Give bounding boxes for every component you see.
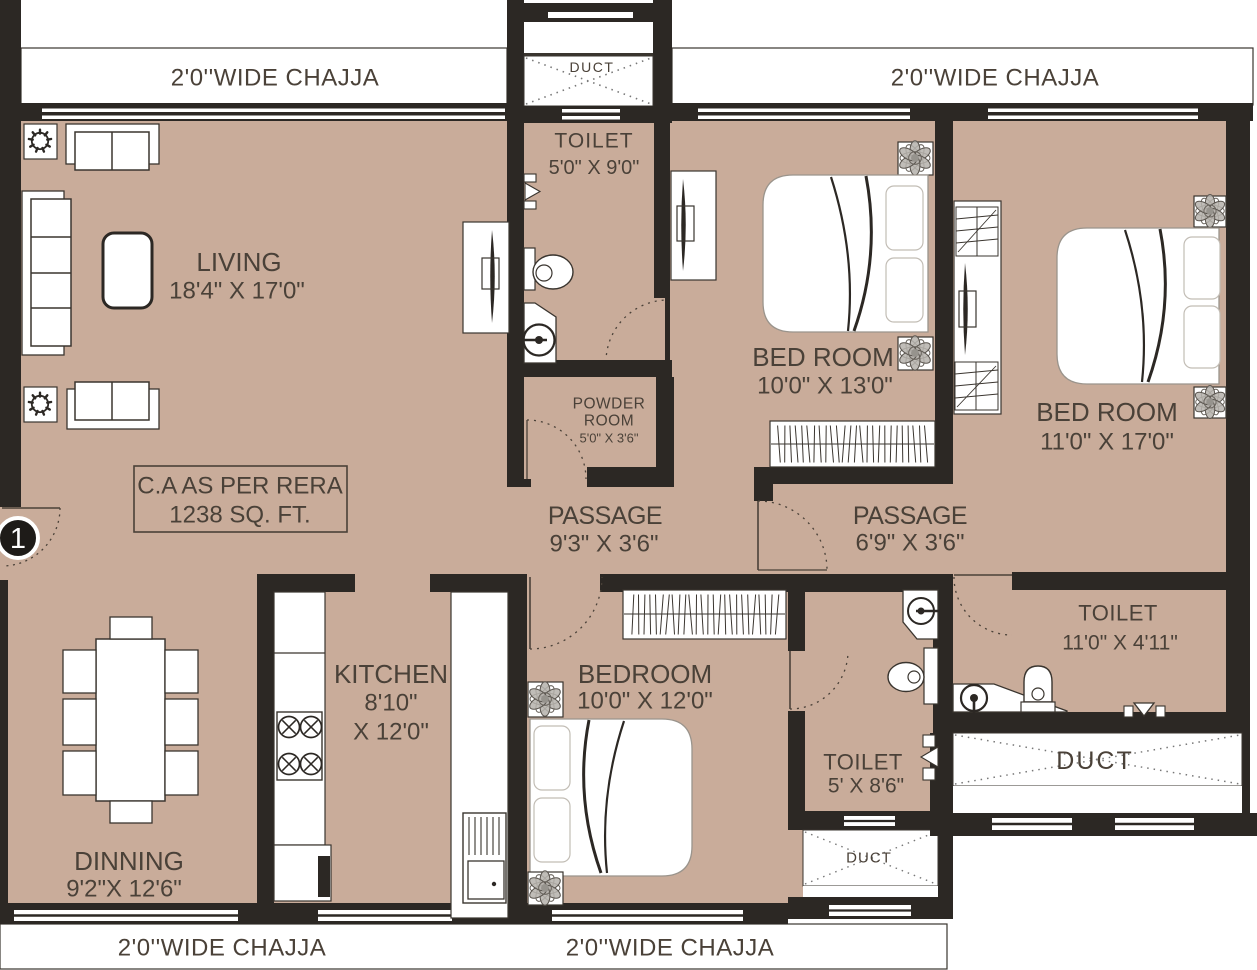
- svg-text:5' X 8'6": 5' X 8'6": [828, 775, 904, 798]
- svg-text:ROOM: ROOM: [584, 413, 634, 430]
- svg-text:LIVING: LIVING: [196, 247, 281, 277]
- svg-text:2'0''WIDE CHAJJA: 2'0''WIDE CHAJJA: [566, 935, 774, 962]
- svg-text:8'10": 8'10": [364, 690, 417, 717]
- svg-text:BEDROOM: BEDROOM: [578, 659, 712, 689]
- svg-text:DINNING: DINNING: [74, 846, 184, 876]
- svg-text:6'9" X 3'6": 6'9" X 3'6": [856, 530, 965, 557]
- svg-text:9'2"X 12'6": 9'2"X 12'6": [66, 876, 182, 903]
- svg-text:KITCHEN: KITCHEN: [334, 659, 448, 689]
- svg-text:1238 SQ. FT.: 1238 SQ. FT.: [169, 502, 310, 529]
- svg-text:2'0''WIDE CHAJJA: 2'0''WIDE CHAJJA: [171, 65, 379, 92]
- svg-text:POWDER: POWDER: [573, 396, 646, 413]
- svg-text:DUCT: DUCT: [570, 59, 615, 75]
- svg-text:DUCT: DUCT: [846, 850, 892, 867]
- svg-text:DUCT: DUCT: [1056, 747, 1133, 775]
- svg-text:PASSAGE: PASSAGE: [548, 502, 662, 530]
- svg-text:C.A AS PER RERA: C.A AS PER RERA: [137, 473, 342, 500]
- svg-text:1: 1: [10, 523, 26, 555]
- svg-text:2'0''WIDE CHAJJA: 2'0''WIDE CHAJJA: [118, 935, 326, 962]
- svg-text:10'0" X 12'0": 10'0" X 12'0": [577, 688, 713, 715]
- svg-text:18'4" X 17'0": 18'4" X 17'0": [169, 278, 305, 305]
- svg-text:BED ROOM: BED ROOM: [1036, 397, 1178, 427]
- svg-text:5'0" X 9'0": 5'0" X 9'0": [549, 157, 640, 179]
- svg-text:TOILET: TOILET: [1078, 601, 1158, 626]
- svg-text:11'0" X 17'0": 11'0" X 17'0": [1040, 429, 1174, 456]
- svg-text:TOILET: TOILET: [554, 130, 633, 153]
- svg-text:11'0" X 4'11": 11'0" X 4'11": [1062, 632, 1178, 655]
- svg-text:10'0" X 13'0": 10'0" X 13'0": [757, 373, 893, 400]
- svg-text:TOILET: TOILET: [823, 750, 903, 775]
- svg-text:BED ROOM: BED ROOM: [752, 342, 894, 372]
- svg-text:5'0" X 3'6": 5'0" X 3'6": [579, 431, 638, 446]
- svg-text:9'3" X 3'6": 9'3" X 3'6": [550, 531, 659, 558]
- svg-text:X 12'0": X 12'0": [353, 719, 429, 746]
- svg-text:2'0''WIDE CHAJJA: 2'0''WIDE CHAJJA: [891, 65, 1099, 92]
- svg-text:PASSAGE: PASSAGE: [853, 502, 967, 530]
